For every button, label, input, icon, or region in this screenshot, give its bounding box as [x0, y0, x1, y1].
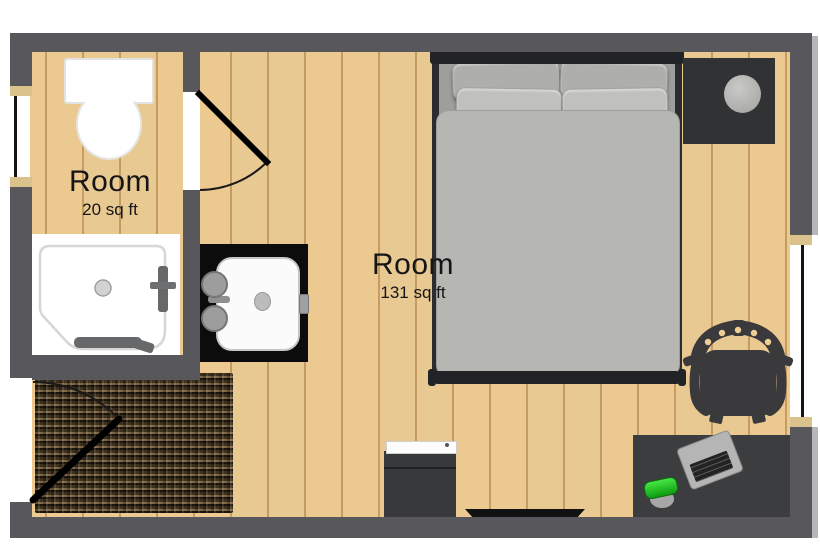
entry-door-leaf [33, 419, 119, 500]
door-swing-icon [33, 382, 119, 419]
main-room-label: Room 131 sq ft [338, 249, 488, 301]
bathroom-label-area: 20 sq ft [35, 201, 185, 219]
door-swing-icon [200, 162, 267, 190]
bath-door-leaf [199, 94, 267, 162]
office-chair-icon [682, 320, 794, 424]
main-room-label-area: 131 sq ft [338, 284, 488, 302]
floor-plan: Room 20 sq ft Room 131 sq ft [0, 0, 820, 560]
bathroom-label-name: Room [35, 166, 185, 198]
bathroom-label: Room 20 sq ft [35, 166, 185, 218]
main-room-label-name: Room [338, 249, 488, 281]
